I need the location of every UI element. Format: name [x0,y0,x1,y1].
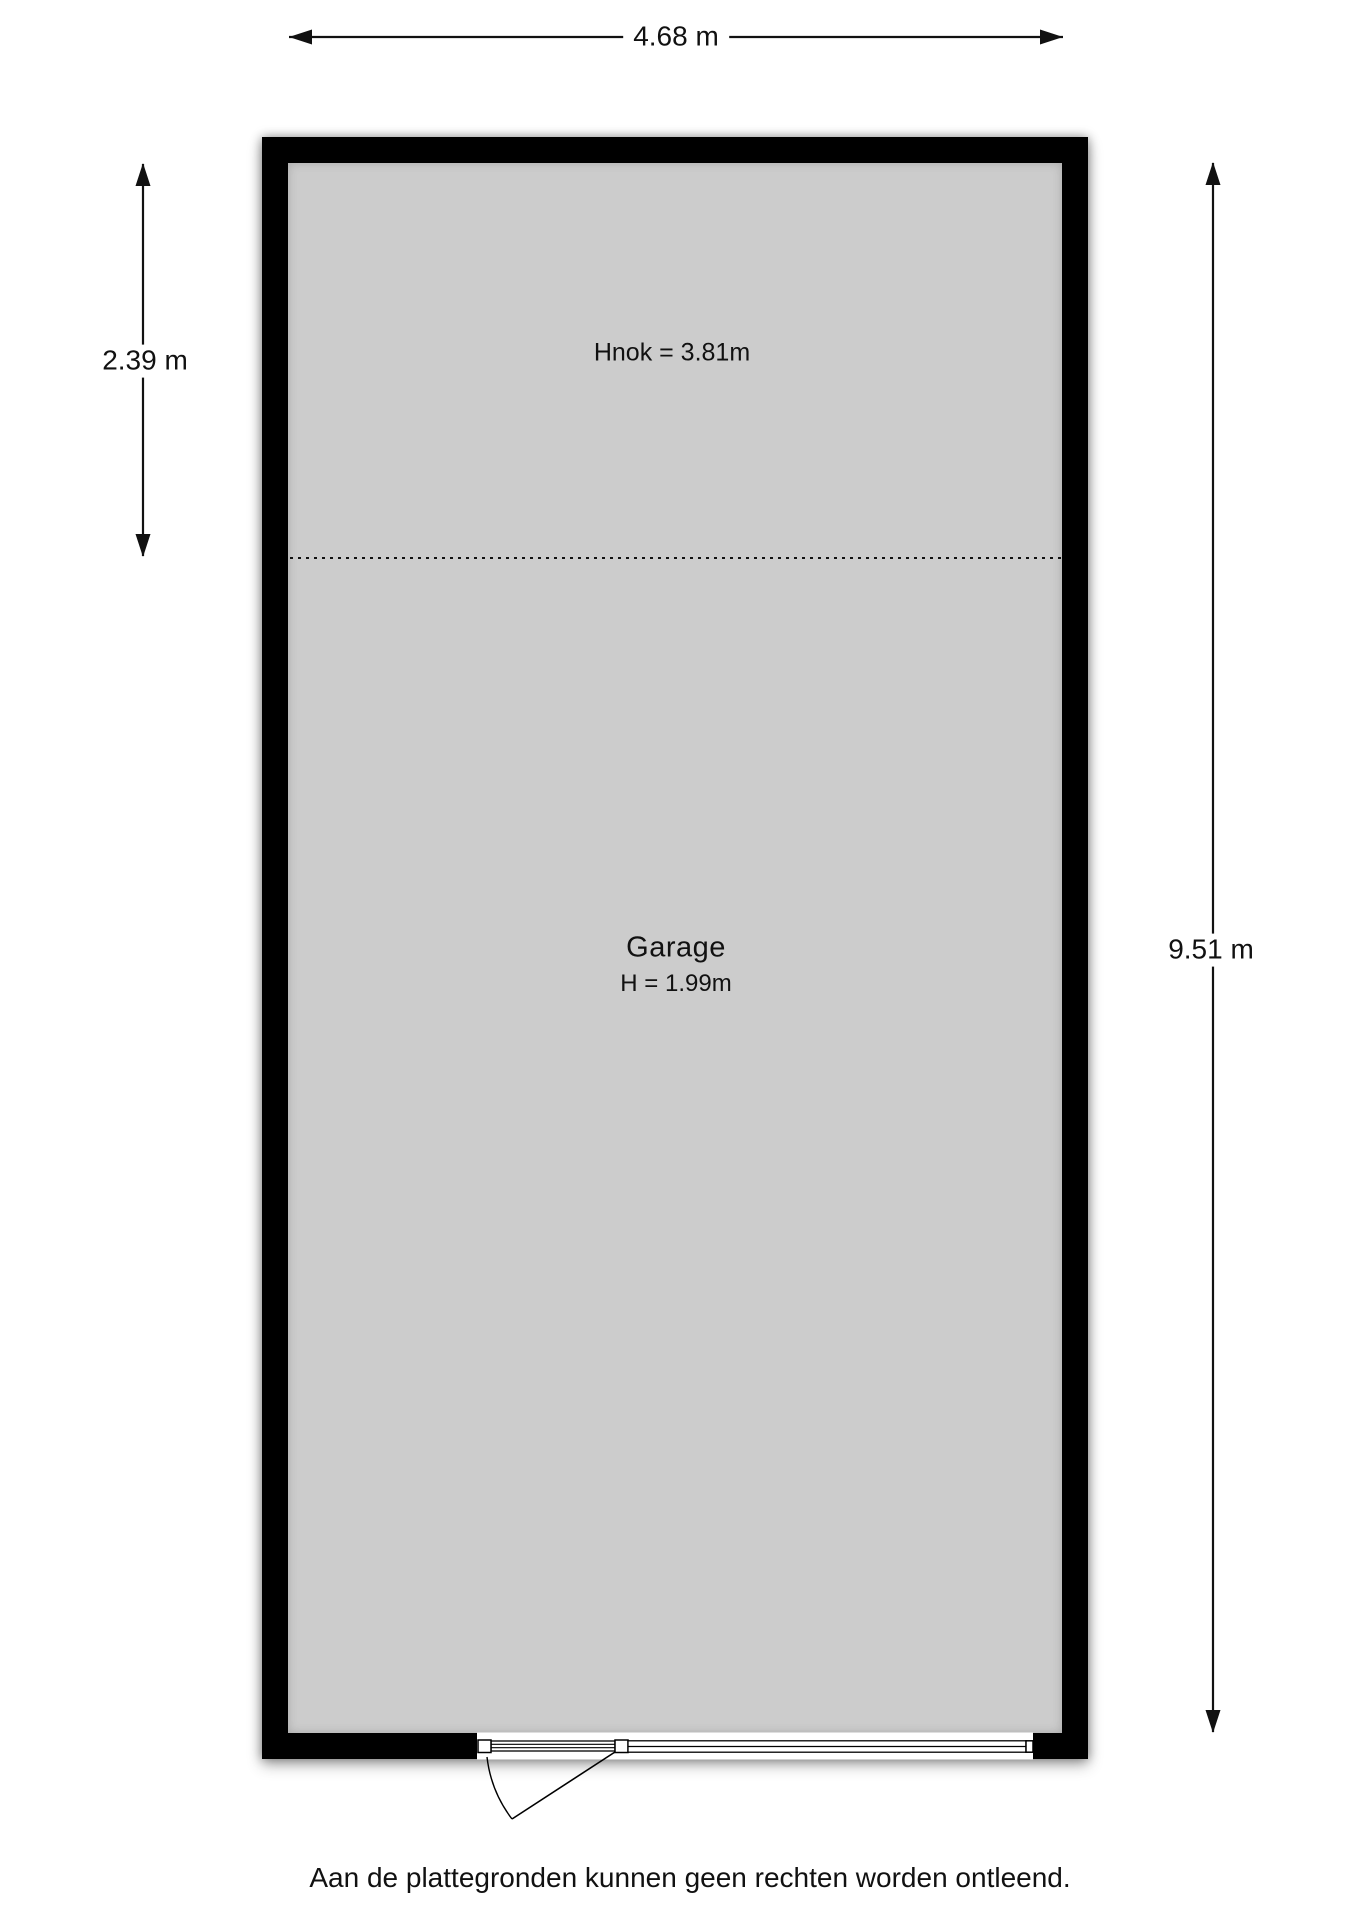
width-dimension-label: 4.68 m [623,21,729,54]
upper-section-dimension-label: 2.39 m [92,345,198,378]
room-name-label: Garage [626,932,726,965]
floorplan-canvas: 4.68 m 2.39 m 9.51 m Hnok = 3.81m Garage… [0,0,1358,1920]
disclaimer-text: Aan de plattegronden kunnen geen rechten… [309,1862,1070,1894]
room-ceiling-height-label: H = 1.99m [620,970,731,998]
depth-dimension-label: 9.51 m [1158,934,1264,967]
ridge-height-label: Hnok = 3.81m [594,339,750,368]
